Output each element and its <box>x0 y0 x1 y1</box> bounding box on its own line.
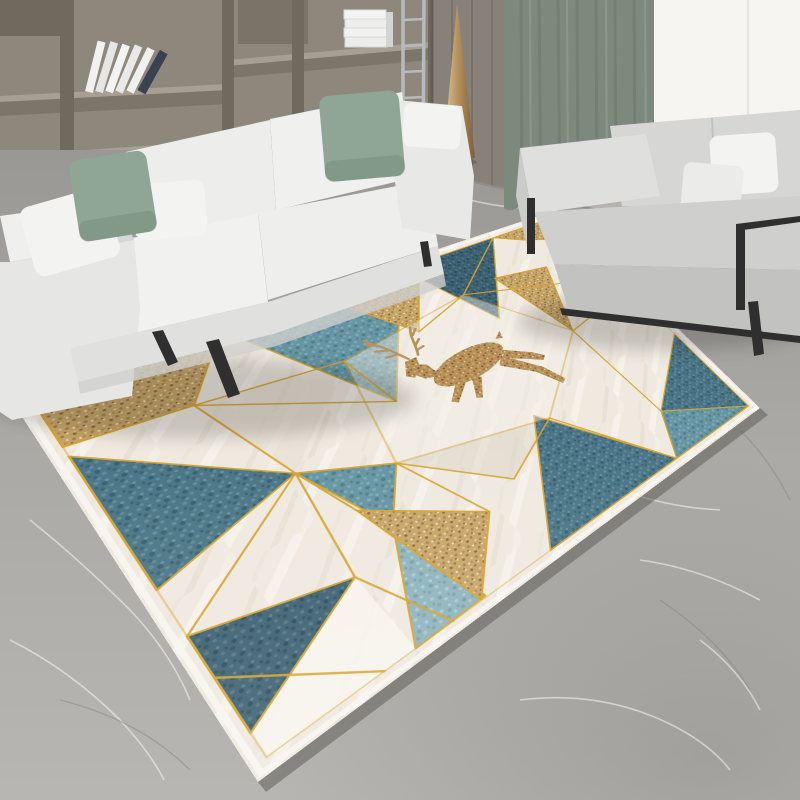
white-pillow <box>402 102 463 150</box>
foreground-scene <box>0 0 800 800</box>
living-room-photo <box>0 0 800 800</box>
